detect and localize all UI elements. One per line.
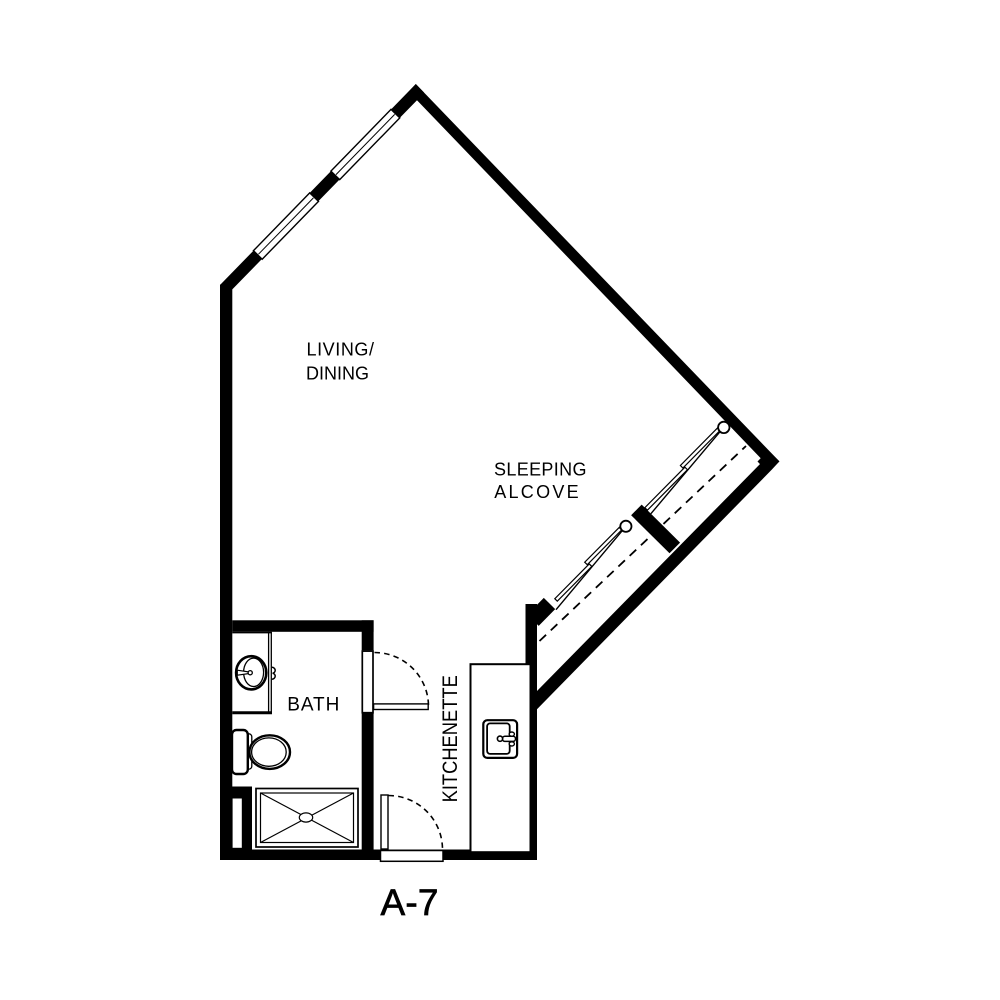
svg-text:SLEEPING: SLEEPING	[494, 460, 587, 480]
svg-text:LIVING/: LIVING/	[307, 339, 375, 359]
svg-text:DINING: DINING	[306, 363, 369, 383]
svg-text:BATH: BATH	[287, 695, 339, 716]
svg-text:KITCHENETTE: KITCHENETTE	[439, 675, 462, 802]
svg-text:A-7: A-7	[381, 882, 439, 923]
